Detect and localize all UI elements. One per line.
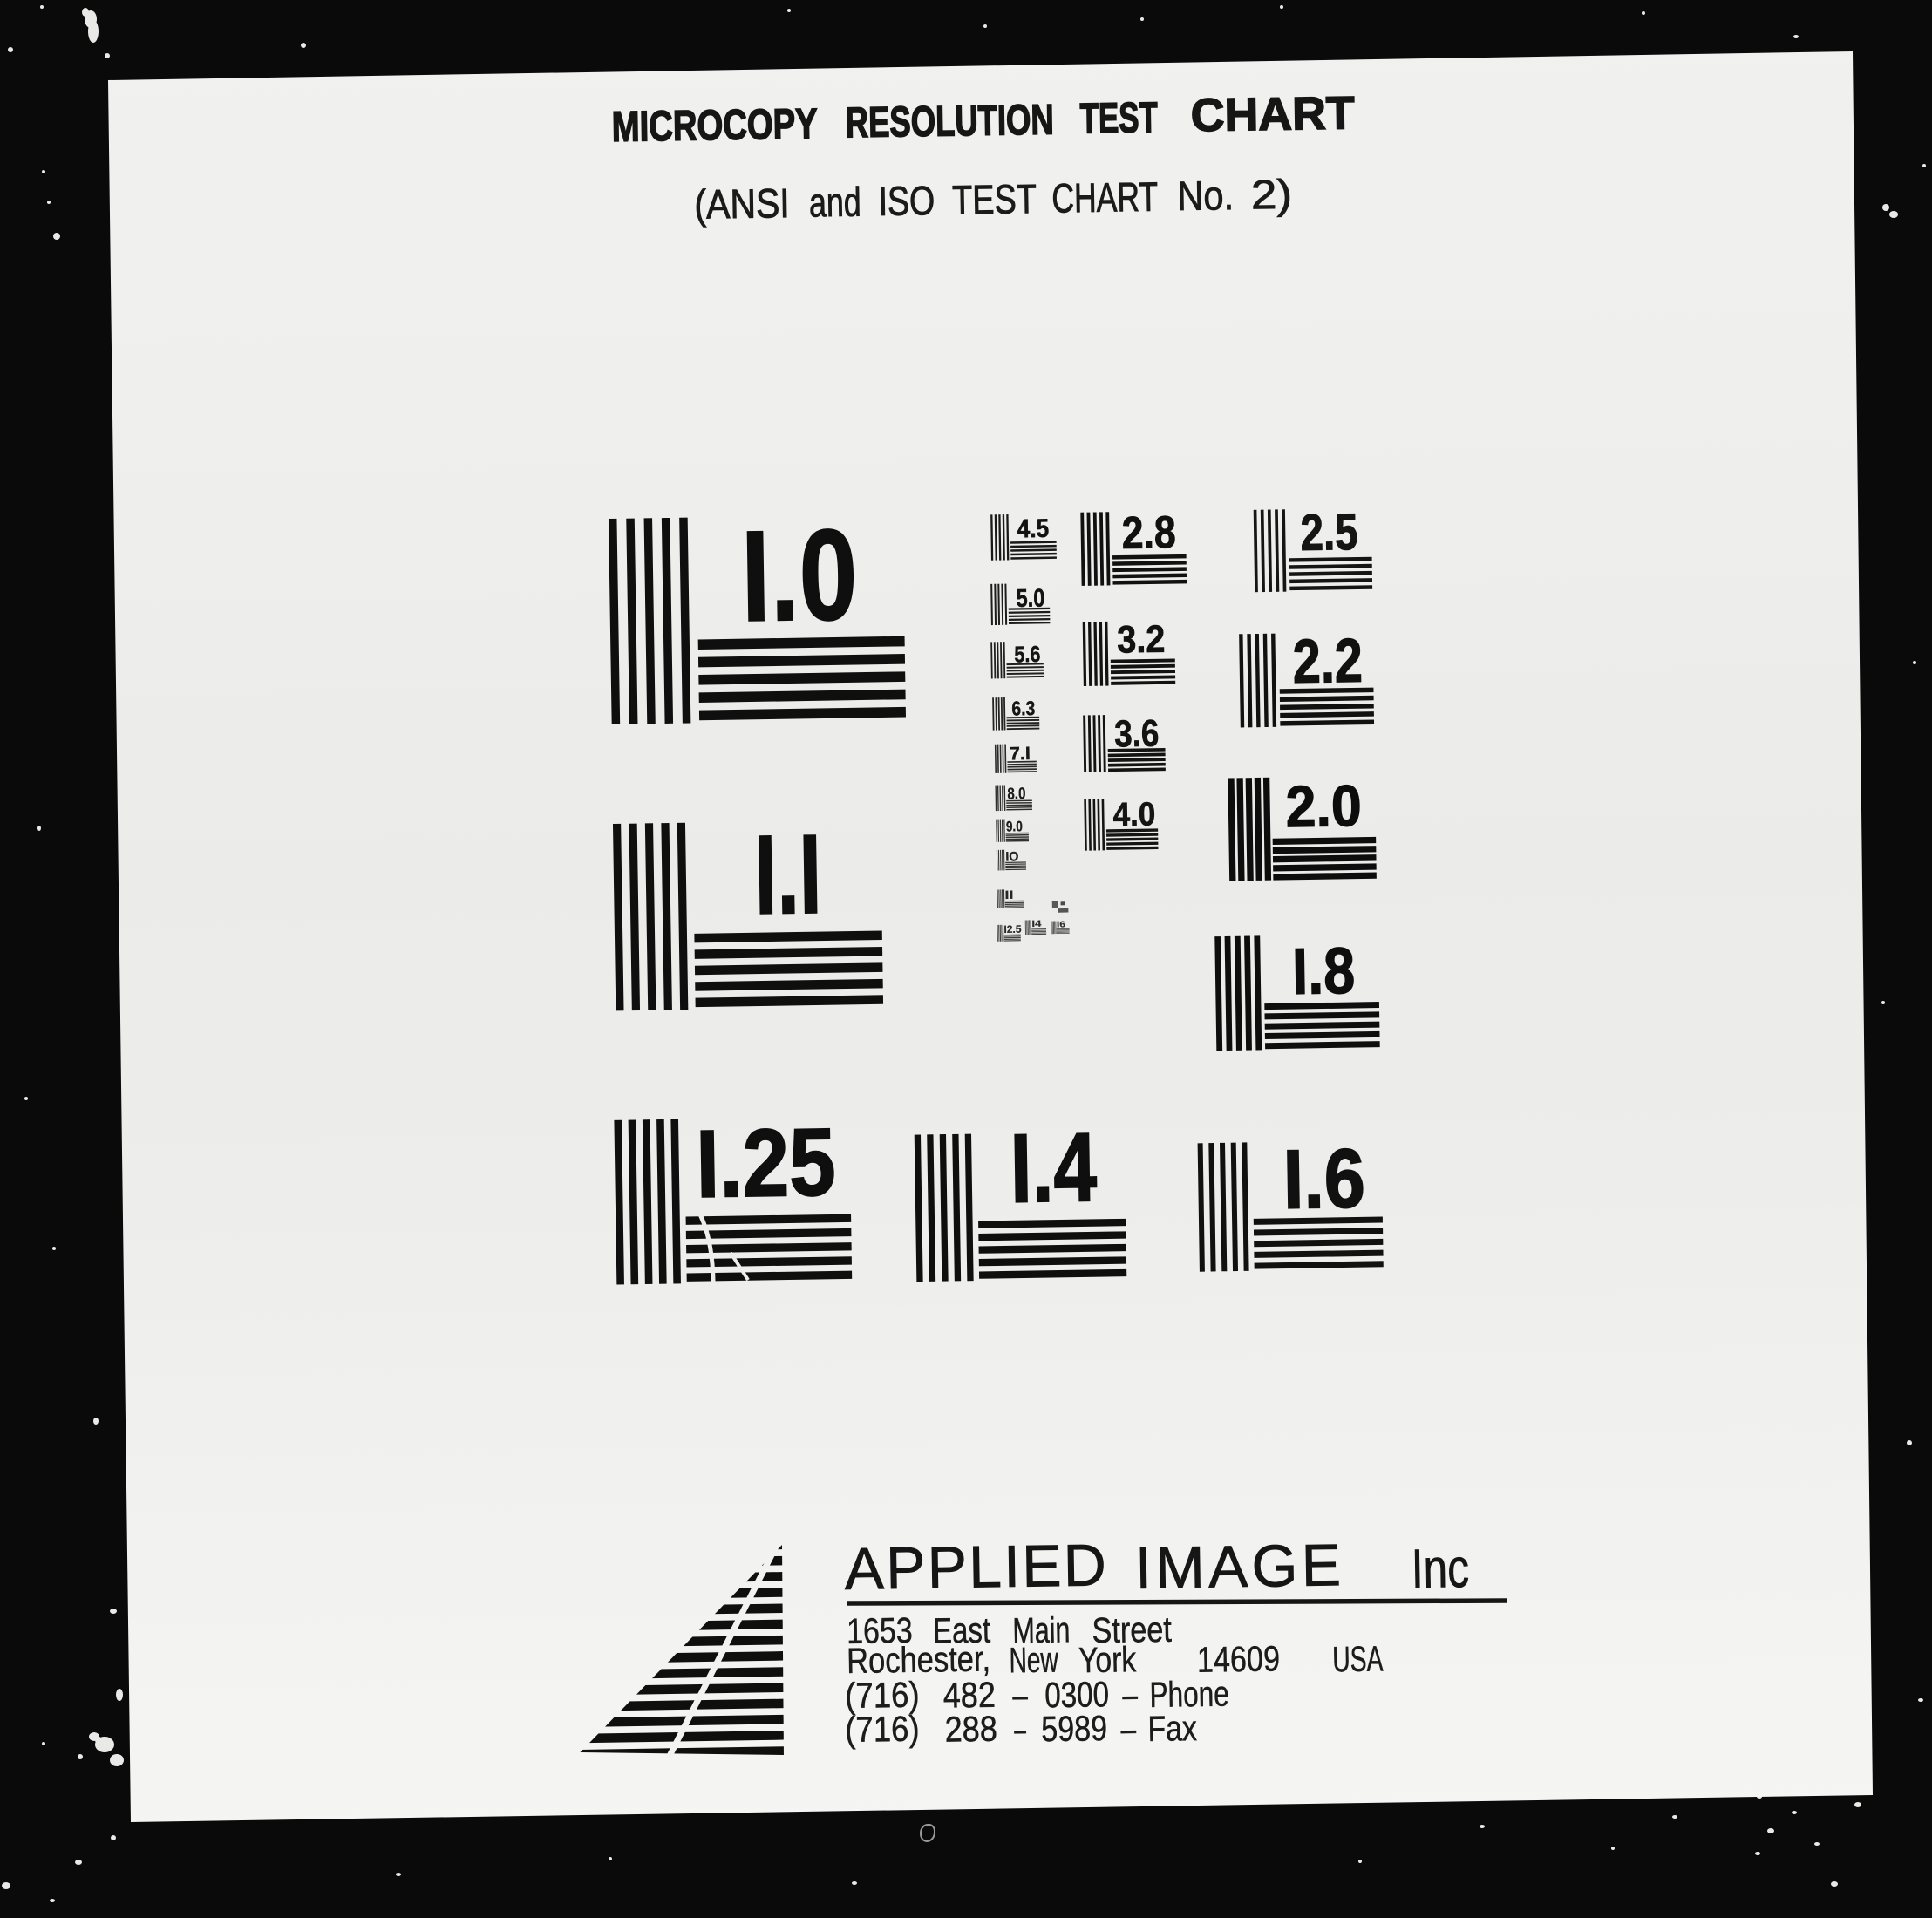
svg-text:Inc: Inc <box>1411 1538 1469 1600</box>
svg-text:4.0: 4.0 <box>1112 796 1155 833</box>
svg-text:I.4: I.4 <box>1010 1112 1098 1223</box>
svg-text:2): 2) <box>1251 171 1293 218</box>
svg-text:5.0: 5.0 <box>1016 584 1044 613</box>
svg-text:(ANSI: (ANSI <box>694 180 790 228</box>
svg-text:5989: 5989 <box>1041 1708 1107 1749</box>
svg-text:6.3: 6.3 <box>1011 697 1035 719</box>
svg-text:288: 288 <box>944 1709 997 1750</box>
svg-text:–: – <box>1120 1709 1136 1749</box>
svg-text:No.: No. <box>1177 172 1234 219</box>
svg-text:I.I: I.I <box>753 812 822 938</box>
svg-text:RESOLUTION: RESOLUTION <box>845 97 1054 147</box>
svg-text:2.2: 2.2 <box>1292 627 1363 697</box>
svg-text:CHART: CHART <box>1190 87 1355 141</box>
svg-text:MICROCOPY: MICROCOPY <box>611 100 818 151</box>
svg-text:Fax: Fax <box>1147 1708 1197 1749</box>
svg-text:I6: I6 <box>1057 920 1066 929</box>
svg-text:I.8: I.8 <box>1291 934 1355 1008</box>
svg-text:USA: USA <box>1332 1638 1384 1679</box>
svg-text:3.6: 3.6 <box>1114 713 1160 756</box>
svg-text:CHART: CHART <box>1051 173 1159 221</box>
svg-text:I4: I4 <box>1031 919 1041 929</box>
svg-text:I.25: I.25 <box>695 1108 836 1217</box>
svg-text:8.0: 8.0 <box>1007 784 1025 802</box>
svg-text:I.0: I.0 <box>740 503 859 649</box>
svg-text:4.5: 4.5 <box>1017 514 1049 544</box>
svg-text:2.0: 2.0 <box>1285 773 1362 840</box>
svg-text:TEST: TEST <box>952 175 1037 223</box>
svg-text:IMAGE: IMAGE <box>1134 1532 1341 1602</box>
svg-text:2.5: 2.5 <box>1300 503 1358 561</box>
svg-text:II: II <box>1004 888 1013 901</box>
svg-text:I2.5: I2.5 <box>1003 923 1022 935</box>
svg-text:–: – <box>1014 1709 1026 1749</box>
svg-text:ISO: ISO <box>878 177 935 224</box>
svg-text:APPLIED: APPLIED <box>844 1532 1106 1602</box>
svg-text:I.6: I.6 <box>1282 1132 1366 1226</box>
svg-text:5.6: 5.6 <box>1014 641 1040 667</box>
svg-text:(716): (716) <box>845 1709 920 1750</box>
svg-text:3.2: 3.2 <box>1117 618 1166 662</box>
svg-text:IO: IO <box>1005 849 1019 864</box>
svg-text:9.0: 9.0 <box>1006 819 1023 834</box>
svg-text:and: and <box>809 179 862 226</box>
svg-text:7.I: 7.I <box>1010 744 1031 764</box>
svg-text:2.8: 2.8 <box>1121 507 1176 559</box>
svg-text:TEST: TEST <box>1079 94 1158 142</box>
